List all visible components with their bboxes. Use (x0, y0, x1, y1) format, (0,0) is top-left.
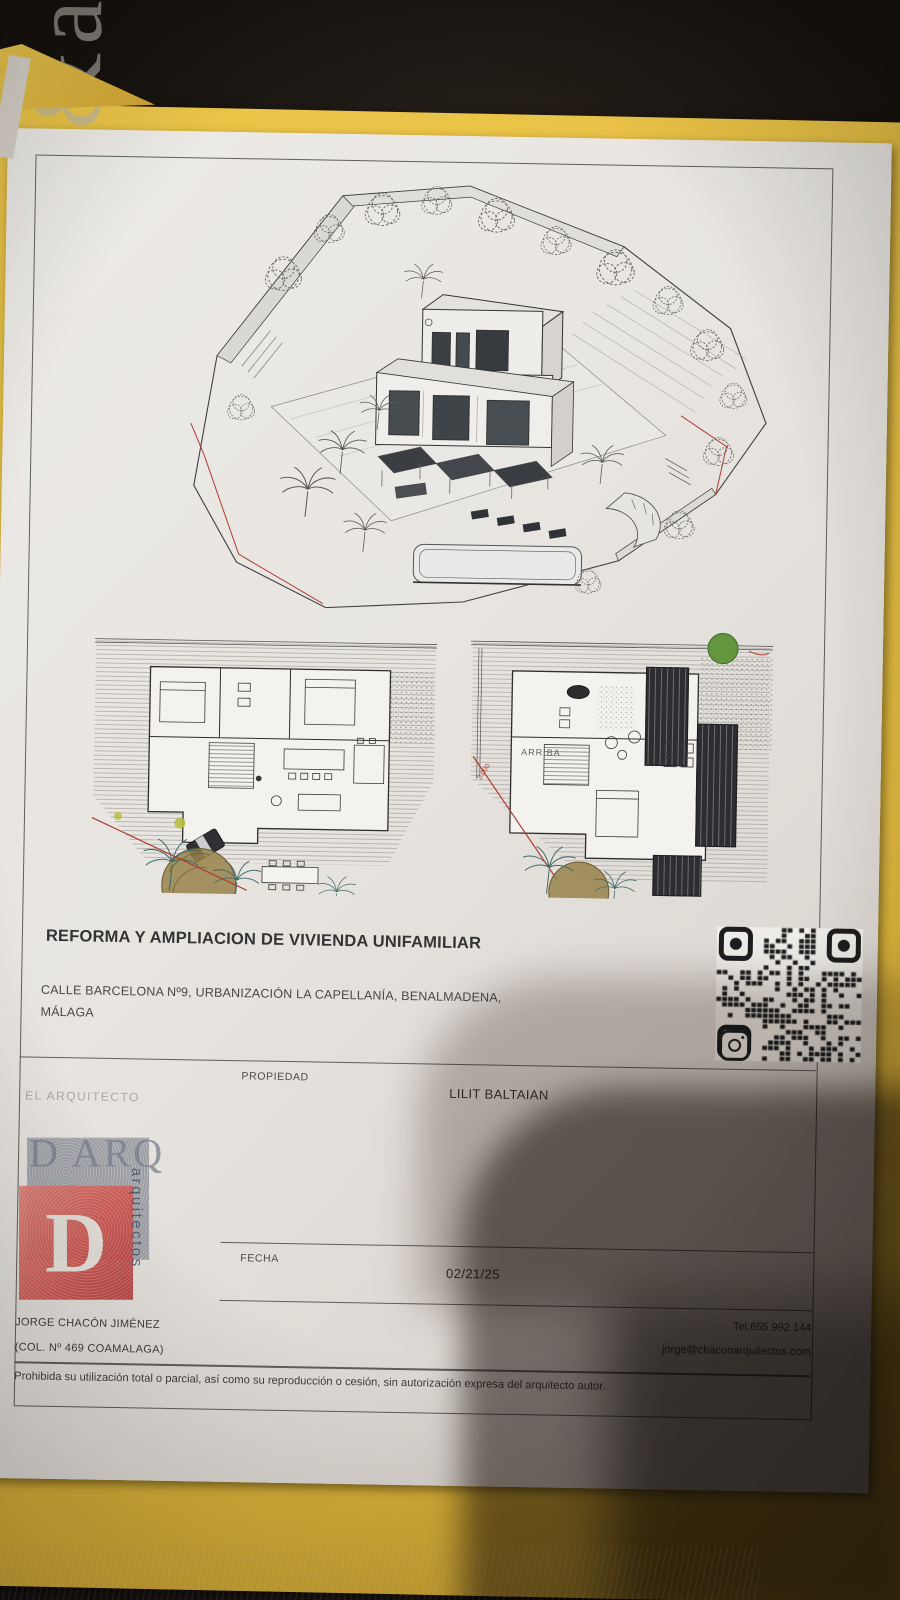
photo-vignette (0, 0, 900, 1600)
photo-of-architectural-sheet: &arquitectos (0, 0, 900, 1600)
